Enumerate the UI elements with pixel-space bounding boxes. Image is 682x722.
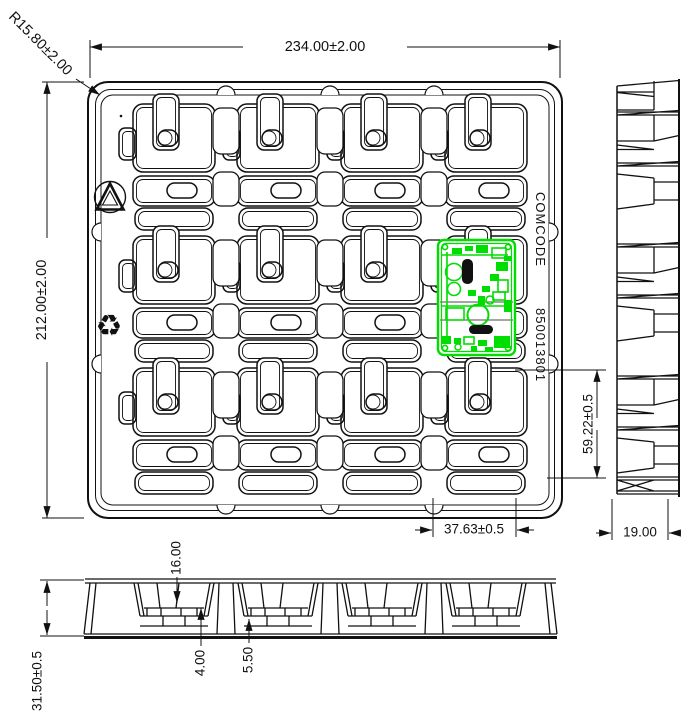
top-view: ♻ — [88, 82, 562, 518]
front-bump-1 — [134, 583, 214, 626]
dim-rib2-text: 5.50 — [241, 647, 256, 673]
dim-pcb-offset-horizontal-text: 37.63±0.5 — [444, 522, 504, 537]
datum-dot — [120, 115, 123, 118]
front-bump-4 — [446, 583, 526, 626]
marking-number: 850013801 — [533, 308, 548, 382]
dim-pocket-depth-text: 16.00 — [169, 541, 184, 575]
dim-front-height — [40, 580, 84, 636]
dim-overall-height-text: 212.00±2.00 — [34, 260, 50, 341]
dim-overall-width-text: 234.00±2.00 — [285, 39, 366, 55]
front-view — [84, 579, 557, 638]
drawing-canvas: ♻ — [0, 0, 682, 722]
dim-side-width-text: 19.00 — [623, 525, 657, 540]
tray-drawing: ♻ — [0, 0, 682, 722]
mobius-recycle-icon: ♻ — [96, 310, 123, 343]
dim-pcb-offset-vertical-text: 59.22±0.5 — [581, 394, 596, 454]
dim-front-height-text: 31.50±0.5 — [30, 651, 45, 711]
pcb — [438, 240, 515, 355]
side-view — [617, 79, 679, 497]
front-bump-2 — [238, 583, 318, 626]
dim-rib1-text: 4.00 — [193, 650, 208, 676]
dim-corner-radius-text: R15.80±2.00 — [5, 9, 75, 79]
front-bump-3 — [342, 583, 422, 626]
marking-comcode: COMCODE — [533, 192, 548, 267]
